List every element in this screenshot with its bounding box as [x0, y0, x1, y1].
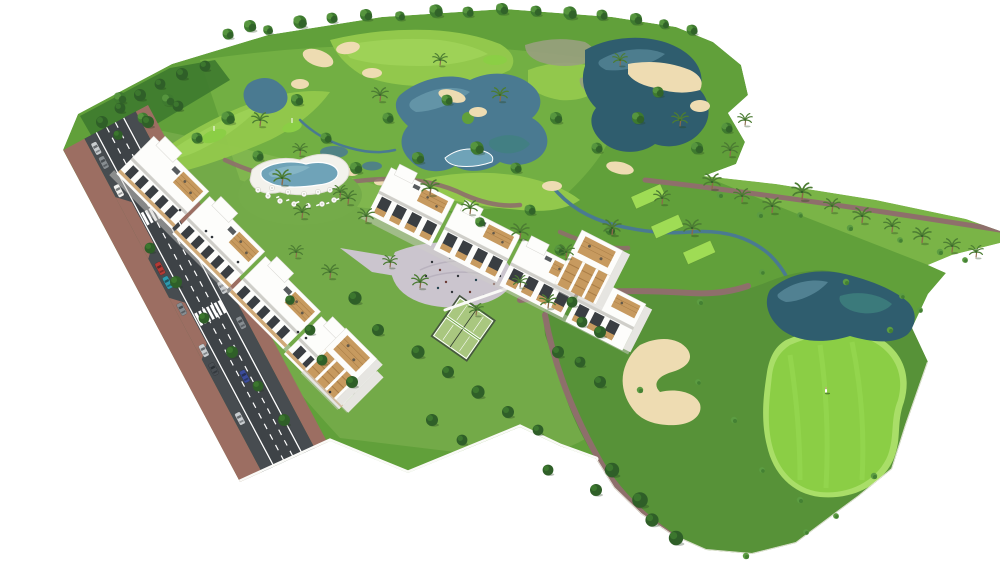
bush	[697, 299, 703, 305]
umbrella	[301, 191, 306, 196]
horizon-tree	[360, 9, 374, 22]
umbrella	[255, 187, 260, 192]
bush	[847, 225, 853, 231]
umbrella	[315, 189, 320, 194]
pedestrian	[329, 391, 332, 394]
bush	[757, 212, 763, 218]
bush	[743, 553, 749, 559]
bush	[871, 473, 877, 479]
person	[439, 269, 441, 271]
pedestrian	[179, 209, 182, 212]
horizon-tree	[244, 20, 258, 33]
tree	[590, 484, 603, 497]
person	[457, 275, 459, 277]
bush	[637, 387, 643, 393]
horizon-tree	[263, 25, 274, 35]
bush	[731, 417, 737, 423]
bush	[899, 293, 905, 299]
person	[475, 279, 477, 281]
umbrella	[327, 187, 332, 192]
umbrella	[285, 189, 290, 194]
terrain	[63, 9, 1000, 554]
bush	[797, 497, 803, 503]
palm-tree	[738, 114, 752, 128]
horizon-tree	[293, 15, 308, 29]
pedestrian	[211, 236, 214, 239]
umbrella	[277, 198, 282, 203]
person	[469, 291, 471, 293]
umbrella	[319, 201, 324, 206]
person	[431, 261, 433, 263]
bush	[759, 269, 765, 275]
umbrella	[291, 201, 296, 206]
bush	[717, 192, 723, 198]
horizon-tree	[327, 13, 339, 25]
umbrella	[265, 193, 270, 198]
horizon-tree	[223, 29, 235, 41]
bush	[803, 529, 809, 535]
person	[445, 281, 447, 283]
aerial-view-svg	[0, 0, 1000, 562]
bush	[797, 212, 803, 218]
marsh	[362, 162, 382, 171]
bush	[759, 467, 765, 473]
umbrella	[269, 185, 274, 190]
person	[437, 287, 439, 289]
bush	[887, 327, 893, 333]
bush	[937, 249, 943, 255]
render-canvas	[0, 0, 1000, 562]
pedestrian	[297, 331, 300, 334]
bush	[897, 237, 903, 243]
bush	[843, 279, 849, 285]
umbrella	[331, 197, 336, 202]
pedestrian	[305, 337, 308, 340]
tree	[543, 465, 555, 476]
person	[451, 291, 453, 293]
bush	[962, 257, 968, 263]
bush	[833, 513, 839, 519]
bush	[917, 307, 923, 313]
pedestrian	[205, 230, 208, 233]
pedestrian	[237, 261, 240, 264]
bush	[695, 379, 701, 385]
